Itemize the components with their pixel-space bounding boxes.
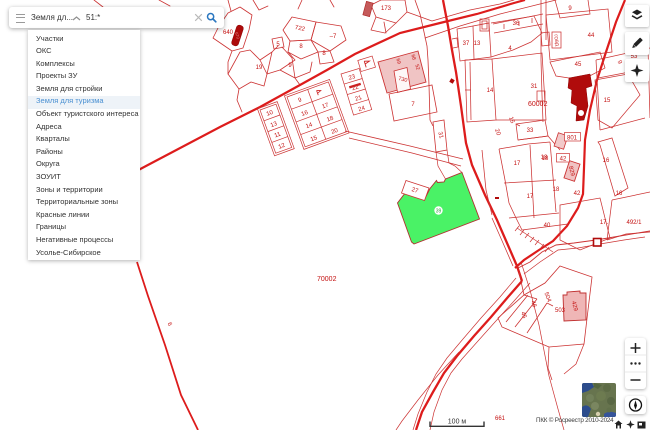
svg-text:801: 801 [567, 136, 578, 142]
svg-text:31: 31 [531, 84, 538, 90]
svg-text:44: 44 [588, 33, 595, 39]
svg-text:39: 39 [436, 209, 442, 215]
svg-text:15: 15 [507, 116, 515, 125]
svg-text:18: 18 [542, 156, 549, 162]
svg-text:504: 504 [543, 292, 552, 304]
svg-text:16: 16 [603, 158, 610, 164]
svg-text:36: 36 [513, 21, 520, 27]
svg-text:14: 14 [487, 88, 494, 94]
svg-text:15: 15 [604, 98, 611, 104]
svg-text:42: 42 [560, 157, 567, 163]
svg-text:16: 16 [301, 110, 310, 118]
svg-text:ГОВД: ГОВД [553, 34, 560, 46]
svg-text:173: 173 [381, 6, 392, 12]
svg-text:14: 14 [305, 122, 314, 130]
svg-text:70002: 70002 [317, 276, 337, 283]
svg-text:6: 6 [166, 322, 173, 328]
svg-text:18: 18 [553, 187, 560, 193]
svg-text:13: 13 [474, 41, 481, 47]
svg-text:5: 5 [276, 42, 280, 48]
svg-text:60002: 60002 [528, 101, 548, 108]
svg-text:20: 20 [493, 128, 501, 137]
svg-text:100 м: 100 м [448, 419, 467, 426]
svg-text:11: 11 [274, 131, 283, 139]
svg-text:31: 31 [436, 131, 444, 140]
svg-text:42: 42 [574, 191, 581, 197]
svg-text:9: 9 [568, 6, 572, 12]
svg-text:9: 9 [616, 60, 623, 66]
svg-text:8: 8 [299, 44, 303, 50]
svg-text:9: 9 [297, 97, 303, 104]
svg-text:17: 17 [527, 194, 534, 200]
svg-text:45: 45 [519, 311, 527, 320]
svg-text:37: 37 [463, 41, 470, 47]
svg-text:–7: –7 [330, 34, 337, 40]
svg-text:45: 45 [575, 62, 582, 68]
svg-text:24: 24 [358, 105, 367, 113]
svg-text:722: 722 [294, 25, 306, 33]
svg-text:17: 17 [514, 161, 521, 167]
svg-text:503: 503 [555, 308, 566, 314]
svg-text:661: 661 [495, 416, 506, 422]
svg-text:33: 33 [527, 128, 534, 134]
svg-text:19: 19 [256, 65, 263, 71]
svg-text:7: 7 [411, 102, 415, 108]
svg-text:17: 17 [321, 102, 330, 110]
svg-text:16: 16 [616, 191, 623, 197]
svg-text:4: 4 [508, 46, 512, 52]
svg-text:640: 640 [223, 30, 234, 36]
svg-text:40: 40 [544, 223, 551, 229]
svg-text:8: 8 [322, 51, 326, 57]
svg-text:9: 9 [288, 63, 292, 69]
svg-text:17.: 17. [600, 220, 609, 226]
svg-text:492/1: 492/1 [626, 220, 642, 226]
svg-text:10: 10 [266, 110, 275, 118]
